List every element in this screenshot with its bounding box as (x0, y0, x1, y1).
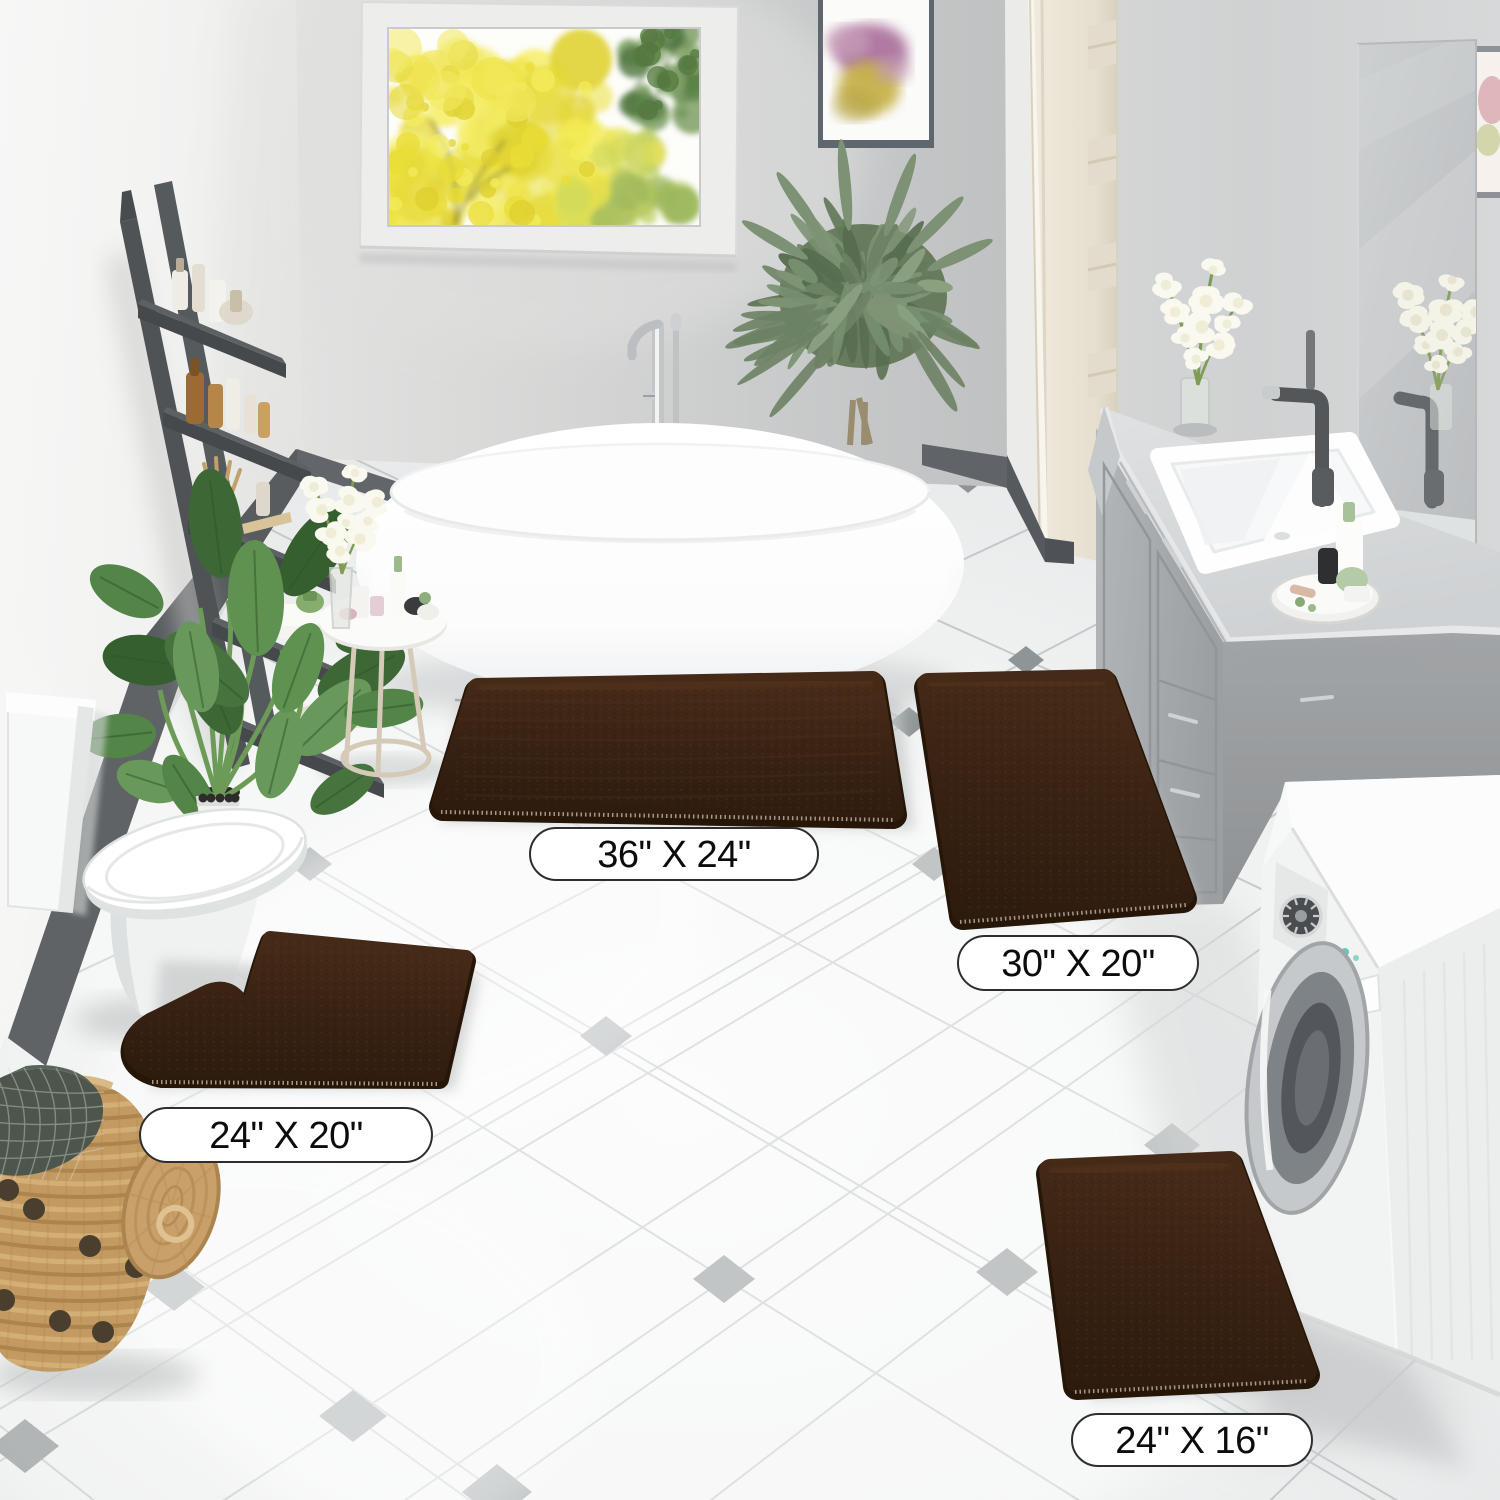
svg-text:30" X 20": 30" X 20" (1001, 943, 1154, 985)
svg-text:24" X 16": 24" X 16" (1115, 1420, 1268, 1462)
svg-text:24" X 20": 24" X 20" (209, 1115, 362, 1157)
svg-text:36" X 24": 36" X 24" (597, 834, 750, 876)
